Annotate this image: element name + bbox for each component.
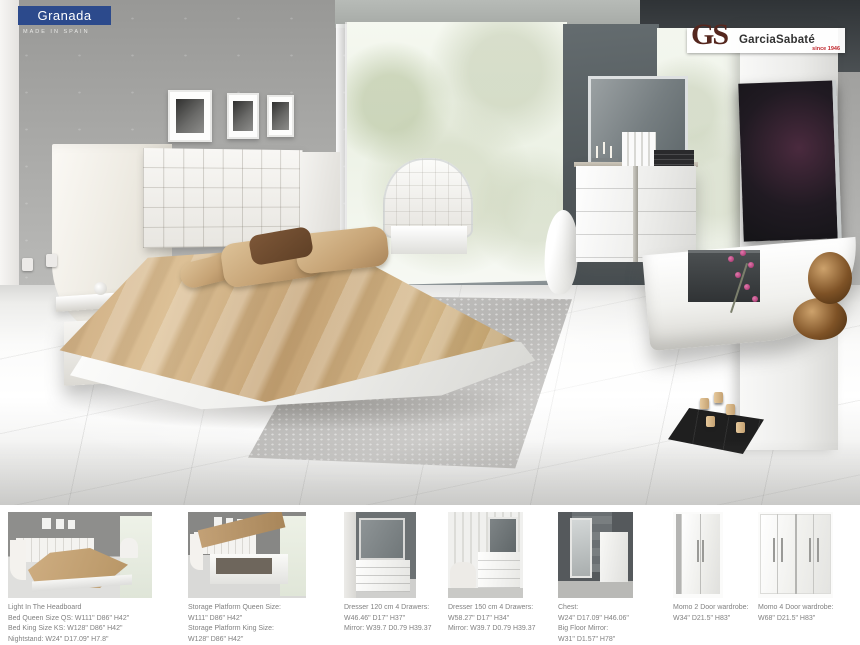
picture-frame (168, 90, 212, 142)
orchid-flower (744, 284, 750, 290)
product-image (448, 512, 523, 598)
candelabra (592, 158, 618, 161)
thumb-door-handle (697, 540, 699, 562)
candle (610, 146, 612, 158)
product-image (344, 512, 416, 598)
brand-name: GarciaSabaté (739, 34, 815, 46)
thumb-curtain (344, 512, 356, 598)
thumb-chest (600, 532, 628, 582)
orchid-flower (748, 262, 754, 268)
thumb-door-gap (700, 514, 701, 594)
light-switch (22, 258, 33, 271)
product-thumb-dresser-150[interactable]: Dresser 150 cm 4 Drawers: W58.27" D17" H… (448, 512, 550, 635)
product-caption: Dresser 150 cm 4 Drawers: W58.27" D17" H… (448, 603, 550, 635)
picture-frame (227, 93, 259, 139)
floor-reflection (0, 440, 860, 505)
game-piece (706, 416, 715, 427)
thumb-nightstand (10, 540, 26, 580)
picture-frame (267, 95, 294, 137)
media-chest (688, 250, 760, 302)
hero-bedroom-photo (0, 0, 860, 505)
thumb-door-handle (781, 538, 783, 562)
game-piece (714, 392, 723, 403)
light-switch (46, 254, 57, 267)
product-image (8, 512, 152, 598)
orchid-flower (740, 250, 746, 256)
dresser-handle-strip (633, 166, 638, 262)
product-thumb-chest[interactable]: Chest: W24" D17.09" H46.06" Big Floor Mi… (558, 512, 650, 645)
thumb-floor (448, 588, 523, 598)
thumb-frame (42, 518, 51, 529)
product-caption: Dresser 120 cm 4 Drawers: W46.46" D17" H… (344, 603, 446, 635)
brand-logo: GS GarciaSabaté since 1946 (687, 28, 845, 53)
books-stack (622, 132, 656, 166)
orchid-flower (735, 272, 741, 278)
candle (596, 146, 598, 158)
product-image (188, 512, 306, 598)
bronze-vase (793, 298, 847, 340)
brand-initials: GS (691, 20, 727, 50)
thumb-storage-interior (216, 558, 272, 574)
framed-photo (272, 102, 288, 129)
product-thumb-bed[interactable]: Light In The Headboard Bed Queen Size QS… (8, 512, 186, 645)
decor-candle-glass (94, 282, 107, 295)
thumb-mirror (488, 517, 518, 557)
thumb-floor-mirror (570, 518, 592, 578)
candle (603, 142, 605, 154)
collection-badge: Granada (18, 6, 111, 25)
made-in-label: MADE IN SPAIN (23, 29, 90, 35)
product-image (758, 512, 833, 598)
product-thumb-wardrobe-2door[interactable]: Momo 2 Door wardrobe: W34" D21.5" H83" (673, 512, 755, 624)
game-piece (726, 404, 735, 415)
framed-photo (176, 99, 204, 134)
brand-since: since 1946 (812, 46, 840, 52)
thumb-door-handle (702, 540, 704, 562)
thumb-frame (68, 520, 75, 529)
thumb-door-gap (777, 514, 778, 594)
framed-photo (233, 101, 253, 131)
product-caption: Storage Platform Queen Size: W111" D86" … (188, 603, 318, 645)
product-caption: Chest: W24" D17.09" H46.06" Big Floor Mi… (558, 603, 650, 645)
thumb-mirror (359, 518, 405, 560)
collection-title: Granada (37, 8, 91, 23)
thumb-dresser (356, 560, 410, 592)
product-thumb-dresser-120[interactable]: Dresser 120 cm 4 Drawers: W46.46" D17" H… (344, 512, 446, 635)
left-wall-edge (0, 0, 19, 320)
thumb-door-gap (813, 514, 814, 594)
thumb-dresser (478, 552, 520, 588)
game-piece (700, 398, 709, 409)
thumb-door-handle (809, 538, 811, 562)
game-piece (736, 422, 745, 433)
orchid-flower (752, 296, 758, 302)
thumb-frame (56, 519, 64, 529)
product-thumb-storage-bed[interactable]: Storage Platform Queen Size: W111" D86" … (188, 512, 318, 645)
thumb-door-gap (795, 514, 797, 594)
product-caption: Light In The Headboard Bed Queen Size QS… (8, 603, 186, 645)
armchair-base (391, 226, 467, 254)
thumb-door-handle (817, 538, 819, 562)
product-image (673, 512, 723, 598)
product-thumb-wardrobe-4door[interactable]: Momo 4 Door wardrobe: W68" D21.5" H83" (758, 512, 852, 624)
thumb-armchair (120, 538, 138, 558)
bronze-vase (808, 252, 852, 304)
product-caption: Momo 2 Door wardrobe: W34" D21.5" H83" (673, 603, 755, 624)
orchid-flower (728, 256, 734, 262)
thumb-armchair (450, 562, 476, 588)
product-caption: Momo 4 Door wardrobe: W68" D21.5" H83" (758, 603, 852, 624)
books-stack-dark (654, 150, 694, 166)
product-image (558, 512, 633, 598)
thumb-door-handle (773, 538, 775, 562)
tv-screen (738, 80, 841, 241)
